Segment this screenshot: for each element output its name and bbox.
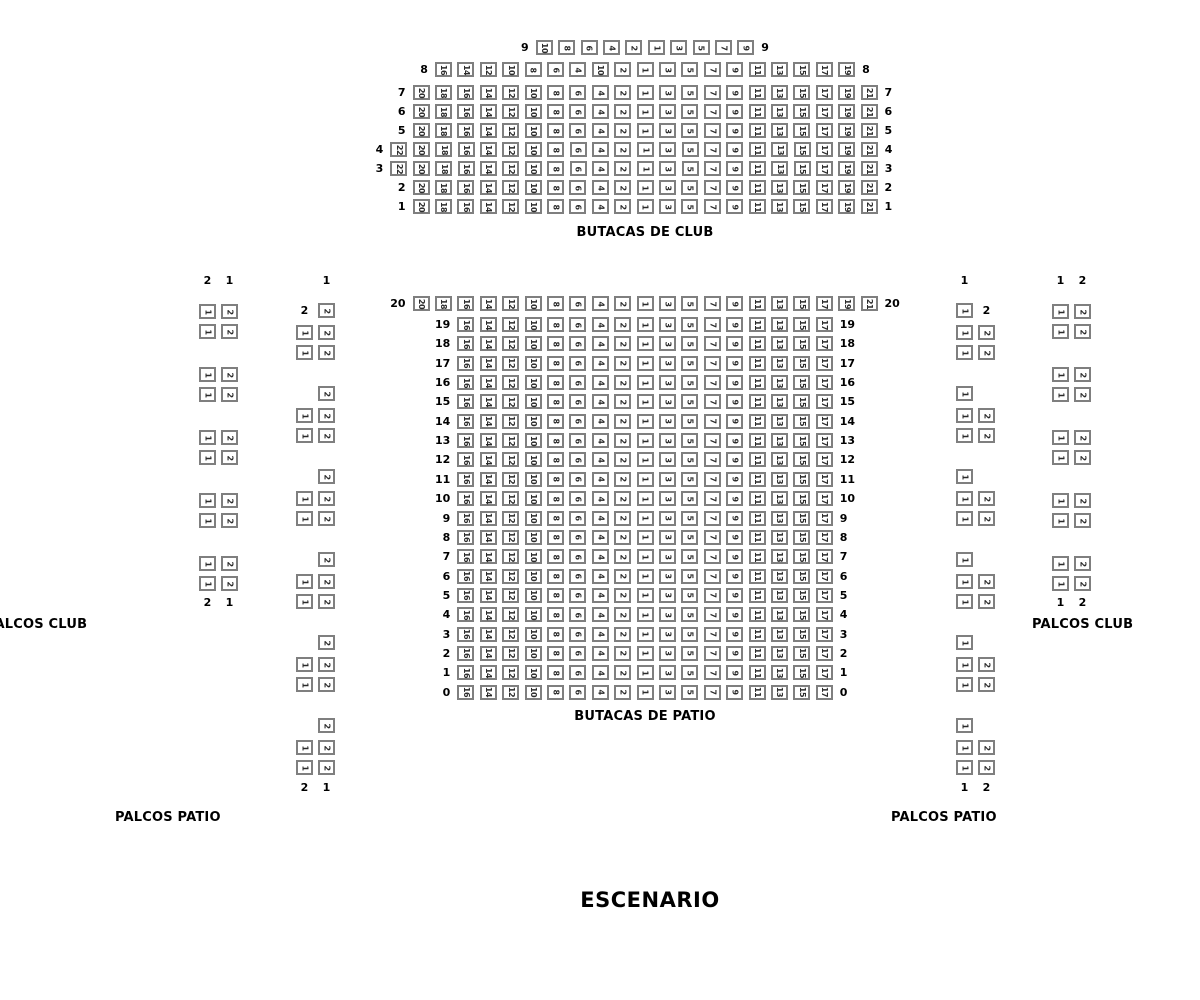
seat-club[interactable]: 1 [637,180,654,195]
seat-patio[interactable]: 8 [547,491,564,506]
seat-palco-left-club[interactable]: 2 [221,367,238,382]
seat-patio[interactable]: 7 [704,588,721,603]
seat-patio[interactable]: 14 [480,511,497,526]
seat-patio[interactable]: 7 [704,296,721,311]
seat-patio[interactable]: 4 [592,646,609,661]
seat-patio[interactable]: 17 [816,433,833,448]
seat-club[interactable]: 17 [816,123,833,138]
seat-club[interactable]: 14 [480,142,497,157]
seat-patio[interactable]: 17 [816,549,833,564]
seat-club[interactable]: 16 [435,62,452,77]
seat-palco-right-club[interactable]: 2 [1074,387,1091,402]
seat-patio[interactable]: 12 [502,375,519,390]
seat-club[interactable]: 5 [681,180,698,195]
seat-palco-left-club[interactable]: 1 [199,324,216,339]
seat-patio[interactable]: 17 [816,394,833,409]
seat-patio[interactable]: 7 [704,627,721,642]
seat-patio[interactable]: 3 [659,452,676,467]
seat-patio[interactable]: 2 [614,394,631,409]
seat-palco-left-patio[interactable]: 1 [296,760,313,775]
seat-patio[interactable]: 4 [592,685,609,700]
seat-patio[interactable]: 6 [569,375,586,390]
seat-palco-left-patio[interactable]: 2 [318,594,335,609]
seat-club[interactable]: 7 [704,142,721,157]
seat-club[interactable]: 9 [726,104,743,119]
seat-patio[interactable]: 2 [614,665,631,680]
seat-club[interactable]: 20 [413,123,430,138]
seat-patio[interactable]: 17 [816,472,833,487]
seat-patio[interactable]: 5 [681,356,698,371]
seat-patio[interactable]: 17 [816,607,833,622]
seat-patio[interactable]: 12 [502,356,519,371]
seat-patio[interactable]: 13 [771,665,788,680]
seat-patio[interactable]: 8 [547,665,564,680]
seat-patio[interactable]: 2 [614,317,631,332]
seat-patio[interactable]: 11 [749,646,766,661]
seat-patio[interactable]: 1 [637,665,654,680]
seat-club[interactable]: 11 [749,104,766,119]
seat-patio[interactable]: 3 [659,627,676,642]
seat-palco-left-club[interactable]: 1 [199,450,216,465]
seat-patio[interactable]: 5 [681,627,698,642]
seat-patio[interactable]: 6 [569,356,586,371]
seat-patio[interactable]: 16 [457,588,474,603]
seat-patio[interactable]: 13 [771,569,788,584]
seat-patio[interactable]: 17 [816,356,833,371]
seat-patio[interactable]: 5 [681,491,698,506]
seat-patio[interactable]: 11 [749,627,766,642]
seat-club[interactable]: 7 [715,40,732,55]
seat-patio[interactable]: 6 [569,472,586,487]
seat-patio[interactable]: 3 [659,685,676,700]
seat-patio[interactable]: 1 [637,414,654,429]
seat-patio[interactable]: 15 [793,685,810,700]
seat-club[interactable]: 15 [793,62,810,77]
seat-club[interactable]: 11 [749,142,766,157]
seat-patio[interactable]: 17 [816,375,833,390]
seat-patio[interactable]: 2 [614,511,631,526]
seat-palco-right-club[interactable]: 1 [1052,450,1069,465]
seat-club[interactable]: 12 [502,85,519,100]
seat-palco-left-patio[interactable]: 1 [296,428,313,443]
seat-club[interactable]: 9 [726,123,743,138]
seat-club[interactable]: 20 [413,142,430,157]
seat-patio[interactable]: 7 [704,375,721,390]
seat-club[interactable]: 16 [458,142,475,157]
seat-patio[interactable]: 7 [704,549,721,564]
seat-patio[interactable]: 15 [793,569,810,584]
seat-patio[interactable]: 8 [547,336,564,351]
seat-patio[interactable]: 16 [457,394,474,409]
seat-patio[interactable]: 16 [457,607,474,622]
seat-club[interactable]: 21 [861,123,878,138]
seat-patio[interactable]: 8 [547,511,564,526]
seat-patio[interactable]: 9 [726,646,743,661]
seat-palco-left-club[interactable]: 2 [221,387,238,402]
seat-patio[interactable]: 14 [480,569,497,584]
seat-patio[interactable]: 3 [659,588,676,603]
seat-palco-left-patio[interactable]: 2 [318,303,335,318]
seat-palco-right-club[interactable]: 2 [1074,367,1091,382]
seat-palco-right-patio[interactable]: 1 [956,552,973,567]
seat-patio[interactable]: 1 [637,511,654,526]
seat-palco-left-patio[interactable]: 1 [296,594,313,609]
seat-club[interactable]: 8 [547,142,564,157]
seat-patio[interactable]: 1 [637,549,654,564]
seat-palco-right-club[interactable]: 2 [1074,450,1091,465]
seat-club[interactable]: 18 [435,142,452,157]
seat-patio[interactable]: 7 [704,665,721,680]
seat-patio[interactable]: 14 [480,317,497,332]
seat-patio[interactable]: 9 [726,665,743,680]
seat-club[interactable]: 12 [502,123,519,138]
seat-patio[interactable]: 16 [457,646,474,661]
seat-patio[interactable]: 16 [457,452,474,467]
seat-patio[interactable]: 1 [637,336,654,351]
seat-club[interactable]: 21 [861,161,878,176]
seat-patio[interactable]: 10 [525,394,542,409]
seat-patio[interactable]: 7 [704,433,721,448]
seat-patio[interactable]: 2 [614,627,631,642]
seat-club[interactable]: 5 [682,161,699,176]
seat-patio[interactable]: 5 [681,588,698,603]
seat-patio[interactable]: 14 [480,394,497,409]
seat-club[interactable]: 12 [502,104,519,119]
seat-patio[interactable]: 12 [502,588,519,603]
seat-club[interactable]: 8 [547,104,564,119]
seat-patio[interactable]: 4 [592,549,609,564]
seat-palco-left-club[interactable]: 1 [199,304,216,319]
seat-club[interactable]: 20 [413,104,430,119]
seat-palco-right-patio[interactable]: 1 [956,740,973,755]
seat-patio[interactable]: 6 [569,588,586,603]
seat-palco-right-patio[interactable]: 1 [956,408,973,423]
seat-patio[interactable]: 9 [726,375,743,390]
seat-patio[interactable]: 16 [457,375,474,390]
seat-patio[interactable]: 8 [547,627,564,642]
seat-club[interactable]: 14 [480,85,497,100]
seat-palco-left-club[interactable]: 2 [221,556,238,571]
seat-palco-right-patio[interactable]: 1 [956,635,973,650]
seat-palco-left-patio[interactable]: 2 [318,491,335,506]
seat-patio[interactable]: 12 [502,472,519,487]
seat-palco-right-patio[interactable]: 1 [956,657,973,672]
seat-patio[interactable]: 6 [569,491,586,506]
seat-club[interactable]: 14 [480,161,497,176]
seat-patio[interactable]: 5 [681,296,698,311]
seat-patio[interactable]: 1 [637,375,654,390]
seat-patio[interactable]: 3 [659,569,676,584]
seat-club[interactable]: 5 [682,142,699,157]
seat-club[interactable]: 1 [637,104,654,119]
seat-patio[interactable]: 1 [637,356,654,371]
seat-patio[interactable]: 13 [771,394,788,409]
seat-patio[interactable]: 12 [502,569,519,584]
seat-patio[interactable]: 6 [569,646,586,661]
seat-club[interactable]: 12 [480,62,497,77]
seat-patio[interactable]: 12 [502,646,519,661]
seat-club[interactable]: 11 [749,161,766,176]
seat-palco-right-patio[interactable]: 1 [956,469,973,484]
seat-palco-left-patio[interactable]: 2 [318,760,335,775]
seat-patio[interactable]: 5 [681,607,698,622]
seat-patio[interactable]: 1 [637,627,654,642]
seat-palco-right-patio[interactable]: 1 [956,718,973,733]
seat-patio[interactable]: 17 [816,511,833,526]
seat-patio[interactable]: 1 [637,491,654,506]
seat-palco-left-club[interactable]: 1 [199,513,216,528]
seat-patio[interactable]: 2 [614,569,631,584]
seat-palco-right-club[interactable]: 2 [1074,576,1091,591]
seat-club[interactable]: 16 [457,85,474,100]
seat-club[interactable]: 1 [637,199,654,214]
seat-palco-left-club[interactable]: 1 [199,556,216,571]
seat-patio[interactable]: 6 [569,433,586,448]
seat-patio[interactable]: 6 [569,317,586,332]
seat-patio[interactable]: 10 [525,472,542,487]
seat-club[interactable]: 19 [838,180,855,195]
seat-patio[interactable]: 5 [681,472,698,487]
seat-palco-left-club[interactable]: 1 [199,387,216,402]
seat-patio[interactable]: 13 [771,627,788,642]
seat-club[interactable]: 10 [502,62,519,77]
seat-patio[interactable]: 17 [816,646,833,661]
seat-club[interactable]: 21 [861,142,878,157]
seat-club[interactable]: 14 [480,104,497,119]
seat-patio[interactable]: 3 [659,511,676,526]
seat-patio[interactable]: 14 [480,452,497,467]
seat-club[interactable]: 7 [704,62,721,77]
seat-patio[interactable]: 18 [435,296,452,311]
seat-club[interactable]: 20 [413,180,430,195]
seat-club[interactable]: 7 [704,199,721,214]
seat-patio[interactable]: 5 [681,511,698,526]
seat-patio[interactable]: 10 [525,414,542,429]
seat-patio[interactable]: 10 [525,375,542,390]
seat-patio[interactable]: 16 [457,317,474,332]
seat-patio[interactable]: 1 [637,317,654,332]
seat-patio[interactable]: 1 [637,472,654,487]
seat-club[interactable]: 20 [413,85,430,100]
seat-patio[interactable]: 15 [793,627,810,642]
seat-club[interactable]: 10 [592,62,609,77]
seat-club[interactable]: 14 [480,199,497,214]
seat-patio[interactable]: 13 [771,336,788,351]
seat-patio[interactable]: 9 [726,452,743,467]
seat-club[interactable]: 4 [603,40,620,55]
seat-patio[interactable]: 14 [480,414,497,429]
seat-patio[interactable]: 2 [614,549,631,564]
seat-club[interactable]: 19 [838,62,855,77]
seat-club[interactable]: 2 [614,161,631,176]
seat-patio[interactable]: 5 [681,569,698,584]
seat-patio[interactable]: 16 [457,627,474,642]
seat-patio[interactable]: 12 [502,511,519,526]
seat-palco-right-patio[interactable]: 1 [956,677,973,692]
seat-patio[interactable]: 17 [816,317,833,332]
seat-club[interactable]: 10 [525,180,542,195]
seat-patio[interactable]: 3 [659,491,676,506]
seat-patio[interactable]: 10 [525,607,542,622]
seat-patio[interactable]: 16 [457,472,474,487]
seat-club[interactable]: 17 [816,85,833,100]
seat-club[interactable]: 13 [771,62,788,77]
seat-palco-left-patio[interactable]: 2 [318,574,335,589]
seat-patio[interactable]: 5 [681,530,698,545]
seat-palco-left-patio[interactable]: 2 [318,469,335,484]
seat-patio[interactable]: 4 [592,491,609,506]
seat-club[interactable]: 2 [614,199,631,214]
seat-palco-left-club[interactable]: 2 [221,430,238,445]
seat-patio[interactable]: 12 [502,665,519,680]
seat-patio[interactable]: 14 [480,336,497,351]
seat-patio[interactable]: 8 [547,569,564,584]
seat-patio[interactable]: 14 [480,530,497,545]
seat-palco-right-patio[interactable]: 1 [956,325,973,340]
seat-patio[interactable]: 9 [726,569,743,584]
seat-club[interactable]: 18 [435,123,452,138]
seat-club[interactable]: 8 [558,40,575,55]
seat-club[interactable]: 5 [681,199,698,214]
seat-patio[interactable]: 9 [726,433,743,448]
seat-patio[interactable]: 11 [749,685,766,700]
seat-patio[interactable]: 11 [749,569,766,584]
seat-patio[interactable]: 4 [592,627,609,642]
seat-patio[interactable]: 12 [502,296,519,311]
seat-patio[interactable]: 12 [502,627,519,642]
seat-palco-right-club[interactable]: 1 [1052,367,1069,382]
seat-palco-left-club[interactable]: 1 [199,493,216,508]
seat-patio[interactable]: 14 [480,296,497,311]
seat-patio[interactable]: 3 [659,375,676,390]
seat-club[interactable]: 6 [569,123,586,138]
seat-patio[interactable]: 14 [480,607,497,622]
seat-patio[interactable]: 15 [793,452,810,467]
seat-club[interactable]: 3 [659,180,676,195]
seat-patio[interactable]: 3 [659,296,676,311]
seat-club[interactable]: 22 [390,142,407,157]
seat-patio[interactable]: 4 [592,414,609,429]
seat-club[interactable]: 8 [547,85,564,100]
seat-patio[interactable]: 9 [726,607,743,622]
seat-club[interactable]: 7 [704,123,721,138]
seat-patio[interactable]: 11 [749,452,766,467]
seat-patio[interactable]: 17 [816,588,833,603]
seat-patio[interactable]: 16 [457,569,474,584]
seat-club[interactable]: 10 [525,85,542,100]
seat-patio[interactable]: 9 [726,336,743,351]
seat-patio[interactable]: 13 [771,607,788,622]
seat-patio[interactable]: 6 [569,511,586,526]
seat-patio[interactable]: 12 [502,394,519,409]
seat-patio[interactable]: 9 [726,356,743,371]
seat-patio[interactable]: 3 [659,356,676,371]
seat-patio[interactable]: 13 [771,414,788,429]
seat-club[interactable]: 10 [536,40,553,55]
seat-club[interactable]: 7 [704,180,721,195]
seat-club[interactable]: 7 [704,85,721,100]
seat-palco-right-club[interactable]: 1 [1052,324,1069,339]
seat-palco-left-patio[interactable]: 2 [318,552,335,567]
seat-patio[interactable]: 1 [637,394,654,409]
seat-palco-right-club[interactable]: 2 [1074,304,1091,319]
seat-patio[interactable]: 15 [793,394,810,409]
seat-palco-right-patio[interactable]: 2 [978,657,995,672]
seat-patio[interactable]: 4 [592,375,609,390]
seat-patio[interactable]: 10 [525,646,542,661]
seat-patio[interactable]: 16 [457,491,474,506]
seat-patio[interactable]: 2 [614,472,631,487]
seat-patio[interactable]: 15 [793,433,810,448]
seat-palco-right-club[interactable]: 2 [1074,493,1091,508]
seat-patio[interactable]: 11 [749,588,766,603]
seat-club[interactable]: 8 [547,180,564,195]
seat-club[interactable]: 4 [592,142,609,157]
seat-patio[interactable]: 6 [569,549,586,564]
seat-patio[interactable]: 19 [838,296,855,311]
seat-club[interactable]: 1 [637,123,654,138]
seat-patio[interactable]: 10 [525,569,542,584]
seat-club[interactable]: 16 [457,104,474,119]
seat-club[interactable]: 2 [614,85,631,100]
seat-patio[interactable]: 11 [749,296,766,311]
seat-palco-right-club[interactable]: 2 [1074,430,1091,445]
seat-club[interactable]: 1 [648,40,665,55]
seat-patio[interactable]: 2 [614,336,631,351]
seat-palco-left-patio[interactable]: 2 [318,345,335,360]
seat-club[interactable]: 14 [480,123,497,138]
seat-patio[interactable]: 8 [547,356,564,371]
seat-club[interactable]: 10 [525,142,542,157]
seat-patio[interactable]: 14 [480,549,497,564]
seat-club[interactable]: 1 [637,85,654,100]
seat-patio[interactable]: 9 [726,414,743,429]
seat-palco-right-patio[interactable]: 1 [956,760,973,775]
seat-patio[interactable]: 9 [726,511,743,526]
seat-club[interactable]: 8 [547,161,564,176]
seat-patio[interactable]: 6 [569,569,586,584]
seat-club[interactable]: 8 [547,199,564,214]
seat-patio[interactable]: 16 [457,336,474,351]
seat-club[interactable]: 2 [614,123,631,138]
seat-club[interactable]: 21 [861,104,878,119]
seat-club[interactable]: 2 [614,142,631,157]
seat-patio[interactable]: 14 [480,588,497,603]
seat-palco-left-patio[interactable]: 1 [296,677,313,692]
seat-club[interactable]: 16 [457,199,474,214]
seat-patio[interactable]: 15 [793,296,810,311]
seat-patio[interactable]: 16 [457,433,474,448]
seat-club[interactable]: 2 [614,104,631,119]
seat-patio[interactable]: 11 [749,607,766,622]
seat-patio[interactable]: 6 [569,607,586,622]
seat-club[interactable]: 16 [458,161,475,176]
seat-patio[interactable]: 8 [547,452,564,467]
seat-club[interactable]: 1 [637,62,654,77]
seat-patio[interactable]: 21 [861,296,878,311]
seat-club[interactable]: 6 [569,199,586,214]
seat-club[interactable]: 19 [838,85,855,100]
seat-patio[interactable]: 15 [793,375,810,390]
seat-patio[interactable]: 7 [704,452,721,467]
seat-patio[interactable]: 7 [704,394,721,409]
seat-patio[interactable]: 16 [457,414,474,429]
seat-club[interactable]: 18 [435,161,452,176]
seat-patio[interactable]: 13 [771,296,788,311]
seat-patio[interactable]: 2 [614,491,631,506]
seat-palco-right-club[interactable]: 2 [1074,513,1091,528]
seat-patio[interactable]: 14 [480,491,497,506]
